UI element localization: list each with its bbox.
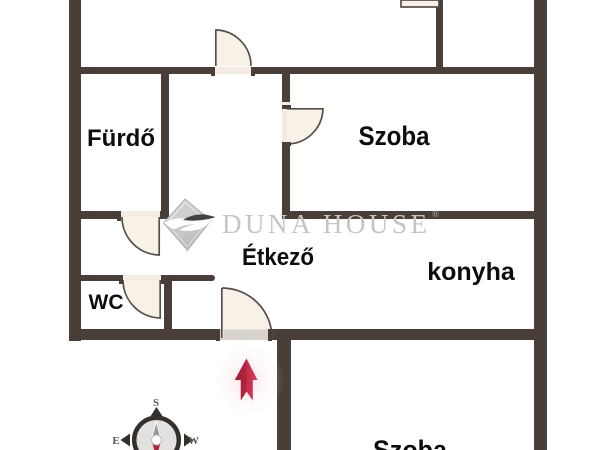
svg-text:®: ® — [432, 209, 439, 219]
svg-text:WC: WC — [89, 291, 124, 314]
svg-text:Szoba: Szoba — [359, 121, 431, 151]
svg-text:Étkező: Étkező — [242, 243, 314, 271]
svg-text:Fürdő: Fürdő — [87, 125, 155, 152]
svg-text:W: W — [188, 435, 199, 447]
svg-text:E: E — [112, 435, 119, 447]
svg-text:S: S — [153, 397, 159, 409]
svg-text:DUNA HOUSE: DUNA HOUSE — [222, 209, 427, 239]
svg-text:Szoba: Szoba — [373, 435, 448, 450]
svg-text:konyha: konyha — [427, 258, 516, 286]
